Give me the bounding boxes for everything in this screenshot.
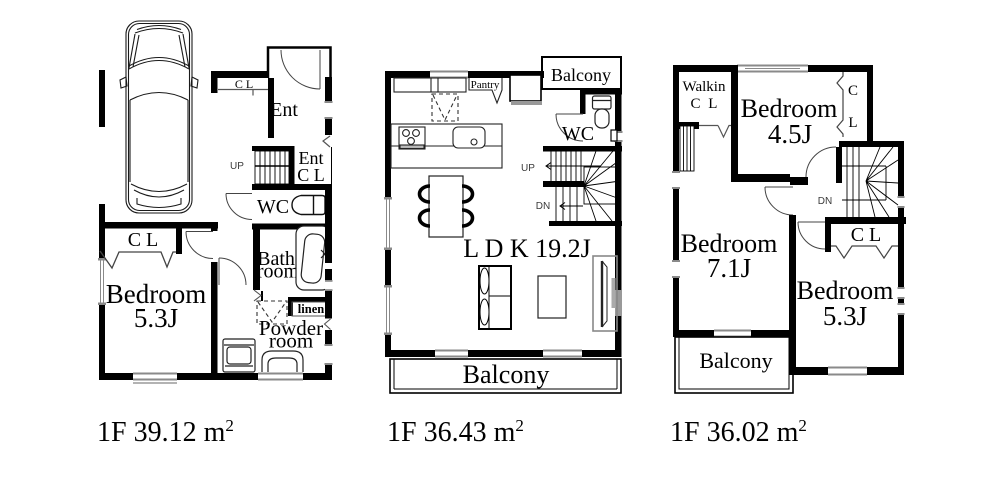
svg-text:Balcony: Balcony — [551, 65, 611, 85]
svg-text:Pantry: Pantry — [471, 79, 500, 91]
svg-text:C L: C L — [851, 224, 882, 246]
svg-text:linen: linen — [298, 302, 324, 316]
svg-text:5.3J: 5.3J — [823, 301, 867, 331]
svg-text:5.3J: 5.3J — [134, 303, 178, 333]
svg-text:WC: WC — [562, 123, 594, 145]
svg-text:Ent: Ent — [270, 99, 298, 121]
svg-text:room: room — [257, 261, 300, 283]
svg-text:7.1J: 7.1J — [707, 253, 751, 283]
svg-text:1F 39.12 m2: 1F 39.12 m2 — [97, 416, 234, 448]
svg-text:C: C — [848, 83, 858, 99]
svg-text:WC: WC — [257, 196, 289, 218]
svg-text:1F 36.43 m2: 1F 36.43 m2 — [387, 416, 524, 448]
svg-text:UP: UP — [521, 163, 535, 174]
svg-text:room: room — [269, 329, 313, 353]
svg-text:1F 36.02 m2: 1F 36.02 m2 — [670, 416, 807, 448]
svg-text:L: L — [848, 115, 857, 131]
svg-text:UP: UP — [230, 161, 244, 172]
svg-text:C L: C L — [128, 229, 159, 251]
svg-text:L D K 19.2J: L D K 19.2J — [463, 234, 591, 263]
svg-text:Balcony: Balcony — [463, 360, 550, 389]
svg-text:Balcony: Balcony — [699, 348, 772, 373]
svg-text:Walkin: Walkin — [683, 79, 726, 95]
svg-text:DN: DN — [818, 196, 832, 207]
svg-text:DN: DN — [536, 201, 550, 212]
svg-text:4.5J: 4.5J — [768, 119, 812, 149]
svg-text:C L: C L — [691, 96, 720, 112]
svg-text:C L: C L — [297, 165, 325, 185]
